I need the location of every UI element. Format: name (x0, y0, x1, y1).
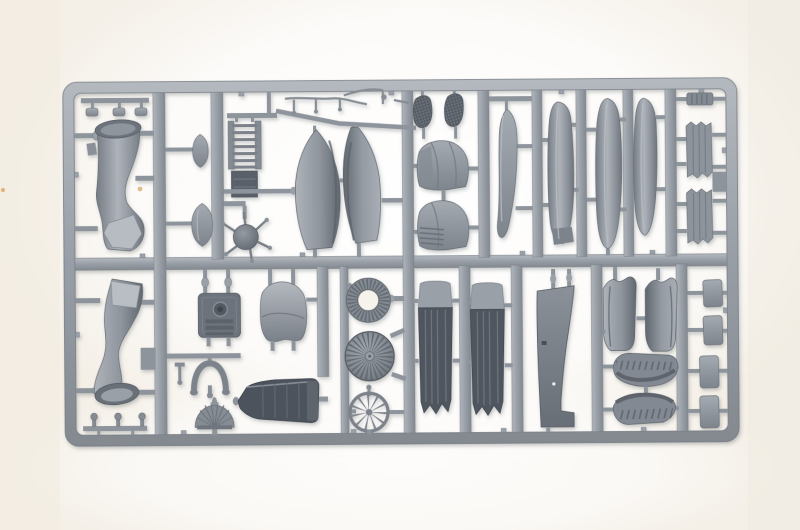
sprue-photo: Unpainted gray injection-molded model ki… (0, 0, 800, 530)
corner-bracket-left (141, 348, 156, 370)
warm-right-edge (748, 0, 800, 530)
warm-left-edge (0, 0, 60, 530)
corner-bracket-right (712, 172, 726, 192)
photo-stage: Unpainted gray injection-molded model ki… (0, 0, 800, 530)
